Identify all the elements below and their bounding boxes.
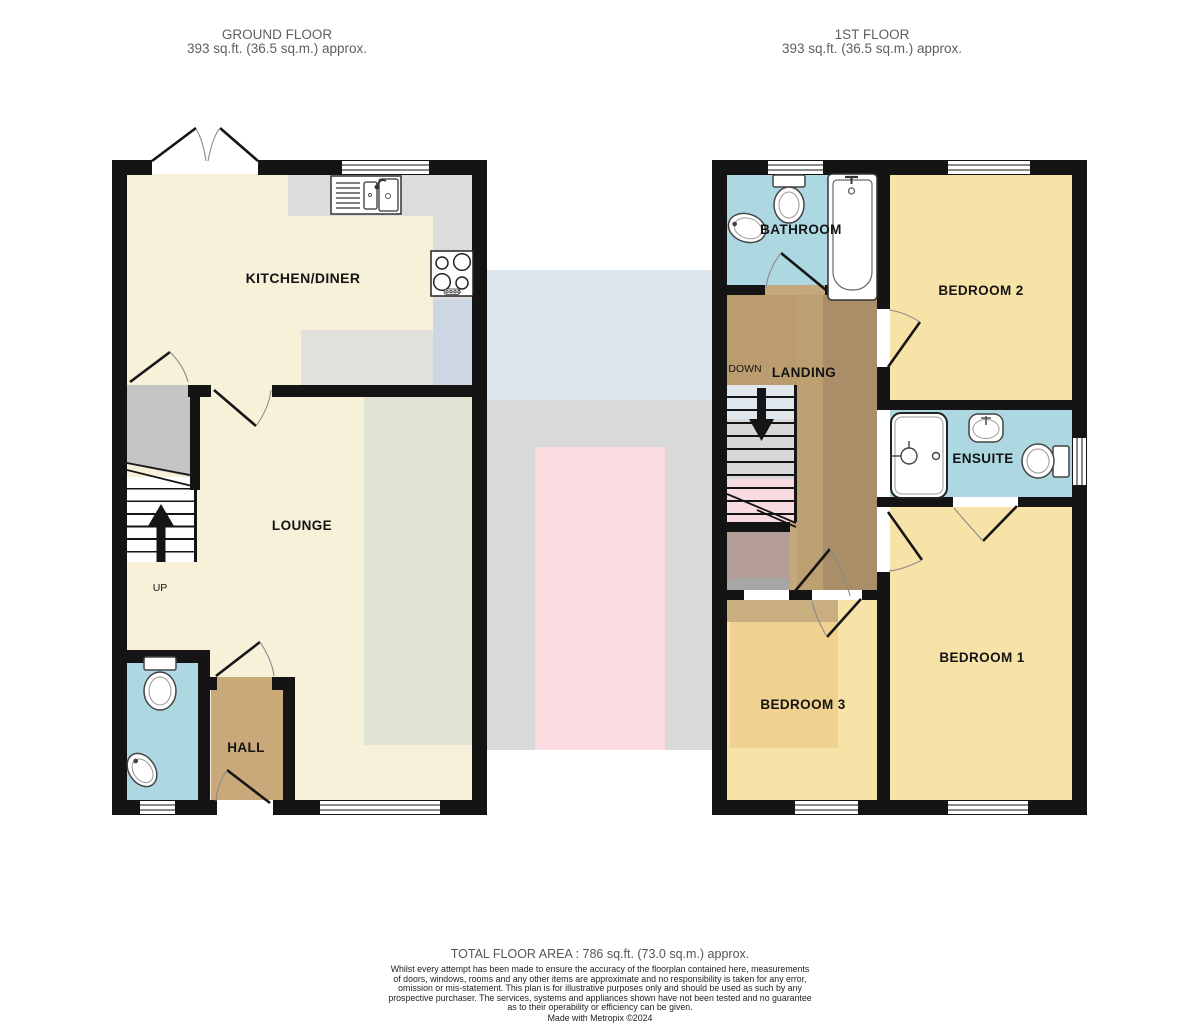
wall — [877, 400, 1087, 410]
kitchen-counter-right — [433, 174, 472, 308]
ghost-overlay — [487, 270, 712, 400]
wall — [1072, 160, 1087, 438]
bathroom-label: BATHROOM — [741, 222, 861, 237]
door-swing — [196, 129, 206, 161]
door-swing — [208, 129, 219, 161]
wall — [273, 800, 320, 815]
first-floor-title: 1ST FLOOR — [707, 28, 1037, 42]
wall — [712, 590, 744, 600]
ground-floor-header: GROUND FLOOR 393 sq.ft. (36.5 sq.m.) app… — [112, 28, 442, 56]
wall — [862, 590, 890, 600]
wall — [112, 800, 140, 815]
up-label: UP — [140, 582, 180, 594]
bedroom1-window — [948, 800, 1028, 815]
wall — [712, 800, 795, 815]
bedroom1-label: BEDROOM 1 — [922, 650, 1042, 665]
wall — [440, 800, 487, 815]
ghost-overlay — [535, 447, 665, 750]
disclaimer-text: Whilst every attempt has been made to en… — [370, 965, 830, 1013]
ground-floor-area: 393 sq.ft. (36.5 sq.m.) approx. — [112, 42, 442, 56]
understairs-cupboard — [127, 385, 190, 477]
wall — [1028, 800, 1087, 815]
ghost-overlay — [730, 622, 838, 748]
bathroom-window — [768, 160, 823, 175]
hall-floor — [211, 677, 283, 800]
wc-window — [140, 800, 175, 815]
lounge-label: LOUNGE — [242, 518, 362, 533]
wall — [472, 160, 487, 815]
wall — [712, 160, 727, 815]
kitchen-label: KITCHEN/DINER — [195, 270, 411, 286]
ground-floor-title: GROUND FLOOR — [112, 28, 442, 42]
wall — [1018, 497, 1075, 507]
wall — [789, 590, 812, 600]
wall — [858, 800, 948, 815]
wall — [190, 385, 200, 490]
floorplan-canvas: GROUND FLOOR 393 sq.ft. (36.5 sq.m.) app… — [0, 0, 1200, 1024]
wc-floor — [127, 663, 198, 800]
ghost-overlay — [727, 532, 790, 578]
hall-label: HALL — [206, 740, 286, 755]
french-door-leaf — [220, 128, 258, 161]
kitchen-window — [342, 160, 429, 175]
bedroom2-window — [948, 160, 1030, 175]
wall — [1072, 485, 1087, 815]
ghost-overlay — [364, 390, 472, 745]
wall — [877, 600, 890, 800]
staircase-down — [727, 385, 797, 522]
wall — [727, 522, 790, 532]
staircase-up — [127, 477, 197, 562]
ghost-overlay — [727, 578, 790, 590]
first-floor-area: 393 sq.ft. (36.5 sq.m.) approx. — [707, 42, 1037, 56]
ghost-overlay — [727, 600, 838, 622]
bedroom3-label: BEDROOM 3 — [743, 697, 863, 712]
wall — [112, 160, 127, 815]
ghost-overlay — [797, 295, 823, 590]
ghost-overlay — [433, 300, 472, 397]
ensuite-label: ENSUITE — [923, 451, 1043, 466]
ensuite-window — [1072, 438, 1087, 485]
wall — [727, 285, 765, 295]
wall — [208, 677, 217, 690]
first-floor-header: 1ST FLOOR 393 sq.ft. (36.5 sq.m.) approx… — [707, 28, 1037, 56]
wall — [272, 385, 472, 397]
credit-text: Made with Metropix ©2024 — [370, 1013, 830, 1023]
wall — [198, 650, 210, 815]
wall — [823, 160, 948, 175]
landing-label: LANDING — [744, 365, 864, 380]
total-floor-area: TOTAL FLOOR AREA : 786 sq.ft. (73.0 sq.m… — [0, 947, 1200, 961]
ghost-overlay — [823, 295, 877, 590]
wall — [877, 497, 953, 507]
wall — [258, 160, 342, 175]
bedroom3-window — [795, 800, 858, 815]
lounge-window — [320, 800, 440, 815]
wall — [877, 174, 890, 309]
wall — [175, 800, 217, 815]
french-door-leaf — [152, 128, 196, 161]
bedroom2-label: BEDROOM 2 — [921, 283, 1041, 298]
